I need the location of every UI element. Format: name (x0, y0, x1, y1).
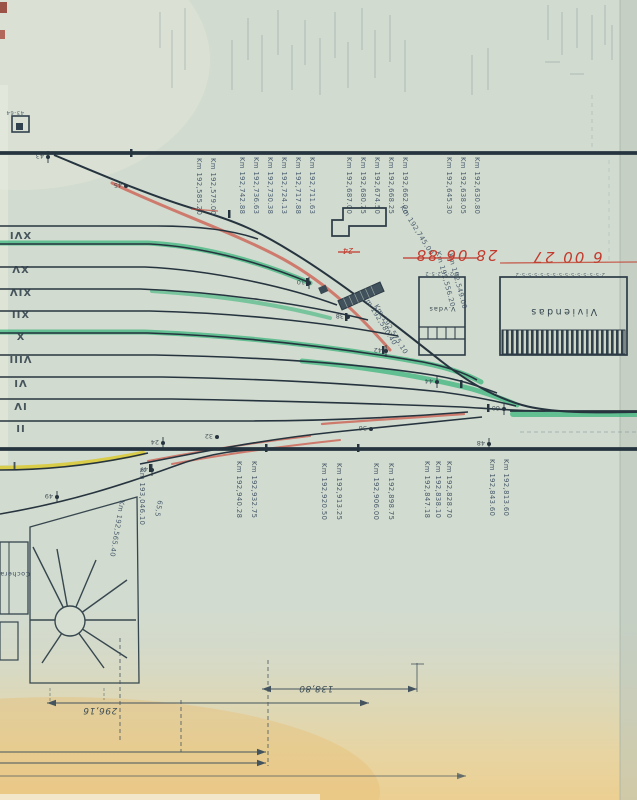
km-label: Km 192,674.50 (373, 157, 381, 214)
switch-number: 48 (477, 439, 485, 447)
turntable-circle (55, 606, 85, 636)
km-label: Km 192,843.60 (488, 459, 496, 516)
scanned-track-plan: 43-64 (0, 0, 637, 800)
corner-note-label: 43-64 (6, 109, 24, 115)
km-label: Km 192,711.63 (308, 157, 316, 214)
dimension-value-main: 296,16 (83, 705, 118, 715)
km-label: Km 192,736.63 (252, 157, 260, 214)
small-building-label: V.vdas (428, 305, 455, 313)
switch-number: 44 (425, 377, 433, 385)
track-label: II (15, 422, 24, 433)
km-label: Km 192,680.75 (359, 157, 367, 214)
km-label: Km 192,813.60 (502, 459, 510, 516)
km-label: Km 192,724.13 (280, 157, 288, 214)
paper-background (0, 0, 637, 800)
viviendas-label: Viviendas (529, 306, 597, 317)
switch-number: 24 (151, 438, 159, 446)
switch-number: 38 (336, 312, 344, 320)
corner-red-mark-2 (0, 30, 5, 39)
track-label: XVI (9, 229, 31, 240)
km-label: Km 192,717.88 (294, 157, 302, 214)
km-label: Km 192,838.10 (434, 461, 442, 518)
switch-number: 49 (45, 492, 53, 500)
viviendas-hatch-band (502, 330, 625, 354)
track-label: IV (13, 400, 26, 411)
track-label: VIII (9, 353, 32, 364)
switch-number: 45 (114, 181, 122, 189)
track-label: I (12, 459, 17, 470)
km-label: Km 192,638.05 (459, 157, 467, 214)
km-label: Km 192,898.75 (387, 463, 395, 520)
digit-row-small: 5·2·5·2·5·2 (425, 270, 460, 276)
km-label: Km 192,742.88 (238, 157, 246, 214)
switch-number: 43 (36, 152, 44, 160)
km-label: Km 192,940.28 (235, 461, 243, 518)
cocheras-label: Cocheras (0, 570, 30, 578)
km-label: Km 192,687.00 (345, 157, 353, 214)
km-label: Km 192,730.38 (266, 157, 274, 214)
km-label: Km 192,668.25 (387, 157, 395, 214)
km-label: Km 192,913.25 (335, 463, 343, 520)
track-label: VI (13, 377, 26, 388)
track-label: XII (11, 308, 29, 319)
plan-svg: 43-64 (0, 0, 637, 800)
dimension-value-secondary: 138,80 (299, 683, 334, 693)
digit-row-viviendas: 2·5·5·5·5·5·5·5·5·5·5·5·5·5·2 (515, 271, 605, 277)
km-label: Km 192,645.30 (445, 157, 453, 214)
right-edge-band (620, 0, 637, 800)
km-label: Km 192,932.75 (250, 461, 258, 518)
km-label: Km 192,828.70 (445, 461, 453, 518)
switch-number: 36 (359, 424, 367, 432)
switch-number: 32 (205, 432, 213, 440)
red-annotation-small: 24 (343, 246, 353, 255)
corner-red-mark-1 (0, 2, 7, 13)
switch-number: 42 (374, 346, 382, 354)
left-edge-strip (0, 85, 8, 465)
red-annotation-left: 28 06 88 (415, 246, 498, 264)
km-label: Km 192,847.18 (423, 461, 431, 518)
km-label: Km 193,046.10 (138, 468, 146, 525)
km-label: Km 192,906.00 (372, 463, 380, 520)
bottom-edge-strip (0, 794, 320, 800)
km-label: Km 192,585.20 (195, 158, 203, 215)
track-label: X (16, 330, 25, 341)
track-label: XIV (9, 286, 31, 297)
km-label: Km 192,579.00 (209, 158, 217, 215)
switch-number: 60 (492, 404, 500, 412)
km-label: Km 192,920.50 (320, 463, 328, 520)
switch-number: 10 (297, 278, 305, 286)
track-label: XV (11, 263, 28, 274)
km-label: Km 192,630.80 (473, 157, 481, 214)
